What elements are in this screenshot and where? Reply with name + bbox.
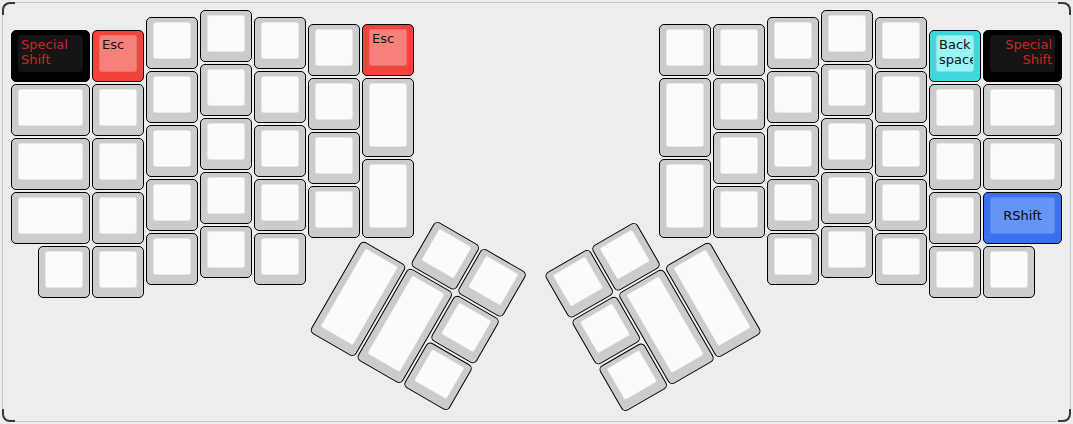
key-blank[interactable] [875, 233, 927, 285]
key-blank[interactable] [362, 159, 414, 238]
key-blank[interactable] [875, 17, 927, 69]
key-special-shift-right[interactable]: Special Shift [983, 30, 1062, 82]
keytop [261, 130, 299, 167]
key-blank[interactable] [929, 84, 981, 136]
key-blank[interactable] [200, 172, 252, 224]
keytop [261, 22, 299, 59]
keytop: RShift [990, 197, 1055, 234]
key-blank[interactable] [254, 17, 306, 69]
keytop [882, 76, 920, 113]
key-blank[interactable] [38, 246, 90, 298]
keytop [153, 76, 191, 113]
keytop [315, 191, 353, 228]
keytop [207, 123, 245, 160]
keytop [774, 238, 812, 275]
keytop [99, 143, 137, 180]
key-backspace[interactable]: Back space [929, 30, 981, 82]
key-blank[interactable] [767, 17, 819, 69]
case-corner-top-left [2, 2, 15, 15]
keytop [828, 177, 866, 214]
keytop [369, 83, 407, 147]
keytop [153, 238, 191, 275]
key-blank[interactable] [308, 24, 360, 76]
keytop [990, 143, 1055, 180]
key-blank[interactable] [11, 138, 90, 190]
keytop [720, 83, 758, 120]
keytop [45, 251, 83, 288]
key-blank[interactable] [146, 233, 198, 285]
case-corner-bottom-left [2, 409, 15, 422]
key-blank[interactable] [146, 179, 198, 231]
keytop [261, 184, 299, 221]
keytop [882, 238, 920, 275]
key-esc-left-inner[interactable]: Esc [362, 24, 414, 76]
key-esc-left[interactable]: Esc [92, 30, 144, 82]
keytop [882, 184, 920, 221]
keytop: Esc [99, 35, 137, 72]
keytop [828, 15, 866, 52]
keytop [261, 238, 299, 275]
keytop [369, 164, 407, 228]
keytop [720, 191, 758, 228]
key-blank[interactable] [200, 118, 252, 170]
key-special-shift-left[interactable]: Special Shift [11, 30, 90, 82]
keytop [990, 251, 1028, 288]
key-blank[interactable] [929, 246, 981, 298]
key-blank[interactable] [92, 246, 144, 298]
key-blank[interactable] [821, 226, 873, 278]
keytop [315, 29, 353, 66]
case-corner-top-right [1058, 2, 1071, 15]
key-blank[interactable] [92, 138, 144, 190]
key-blank[interactable] [821, 118, 873, 170]
keytop [153, 22, 191, 59]
key-blank[interactable] [983, 84, 1062, 136]
key-blank[interactable] [659, 78, 711, 157]
keytop [936, 89, 974, 126]
key-blank[interactable] [929, 192, 981, 244]
key-blank[interactable] [821, 10, 873, 62]
keytop [936, 251, 974, 288]
keytop [666, 164, 704, 228]
keytop [774, 22, 812, 59]
key-blank[interactable] [254, 125, 306, 177]
keytop [315, 137, 353, 174]
keytop [720, 29, 758, 66]
keytop [261, 76, 299, 113]
keytop [99, 89, 137, 126]
key-blank[interactable] [983, 246, 1035, 298]
key-blank[interactable] [146, 71, 198, 123]
keytop [99, 251, 137, 288]
keytop [720, 137, 758, 174]
keytop [18, 197, 83, 234]
key-blank[interactable] [713, 78, 765, 130]
keytop [828, 69, 866, 106]
key-blank[interactable] [11, 84, 90, 136]
keytop: Special Shift [18, 35, 83, 72]
keytop [774, 76, 812, 113]
keytop [882, 22, 920, 59]
key-blank[interactable] [821, 172, 873, 224]
keytop [828, 123, 866, 160]
keytop [774, 184, 812, 221]
keytop [18, 143, 83, 180]
keytop [207, 231, 245, 268]
key-blank[interactable] [146, 125, 198, 177]
key-blank[interactable] [983, 138, 1062, 190]
key-blank[interactable] [875, 125, 927, 177]
keytop [99, 197, 137, 234]
key-blank[interactable] [767, 179, 819, 231]
key-blank[interactable] [92, 192, 144, 244]
key-blank[interactable] [713, 132, 765, 184]
keytop [666, 83, 704, 147]
keytop [207, 177, 245, 214]
key-blank[interactable] [254, 71, 306, 123]
key-blank[interactable] [308, 78, 360, 130]
keytop [774, 130, 812, 167]
keytop [207, 15, 245, 52]
key-blank[interactable] [11, 192, 90, 244]
key-blank[interactable] [821, 64, 873, 116]
key-blank[interactable] [767, 71, 819, 123]
key-blank[interactable] [308, 186, 360, 238]
key-blank[interactable] [200, 226, 252, 278]
key-blank[interactable] [659, 24, 711, 76]
keytop [153, 130, 191, 167]
keytop [882, 130, 920, 167]
key-blank[interactable] [254, 233, 306, 285]
key-blank[interactable] [200, 10, 252, 62]
keytop [666, 29, 704, 66]
keytop [18, 89, 83, 126]
key-blank[interactable] [362, 78, 414, 157]
key-blank[interactable] [767, 125, 819, 177]
key-blank[interactable] [875, 179, 927, 231]
keytop: Back space [936, 35, 974, 72]
keytop [990, 89, 1055, 126]
keytop [828, 231, 866, 268]
key-blank[interactable] [254, 179, 306, 231]
key-blank[interactable] [929, 138, 981, 190]
keytop: Special Shift [990, 35, 1055, 72]
keytop [207, 69, 245, 106]
key-blank[interactable] [659, 159, 711, 238]
key-blank[interactable] [767, 233, 819, 285]
key-blank[interactable] [200, 64, 252, 116]
keytop [936, 143, 974, 180]
key-blank[interactable] [713, 24, 765, 76]
keytop [936, 197, 974, 234]
keytop: Esc [369, 29, 407, 66]
key-blank[interactable] [875, 71, 927, 123]
key-blank[interactable] [146, 17, 198, 69]
case-corner-bottom-right [1058, 409, 1071, 422]
keytop [315, 83, 353, 120]
key-blank[interactable] [308, 132, 360, 184]
key-rshift[interactable]: RShift [983, 192, 1062, 244]
key-blank[interactable] [92, 84, 144, 136]
keytop [153, 184, 191, 221]
key-blank[interactable] [713, 186, 765, 238]
